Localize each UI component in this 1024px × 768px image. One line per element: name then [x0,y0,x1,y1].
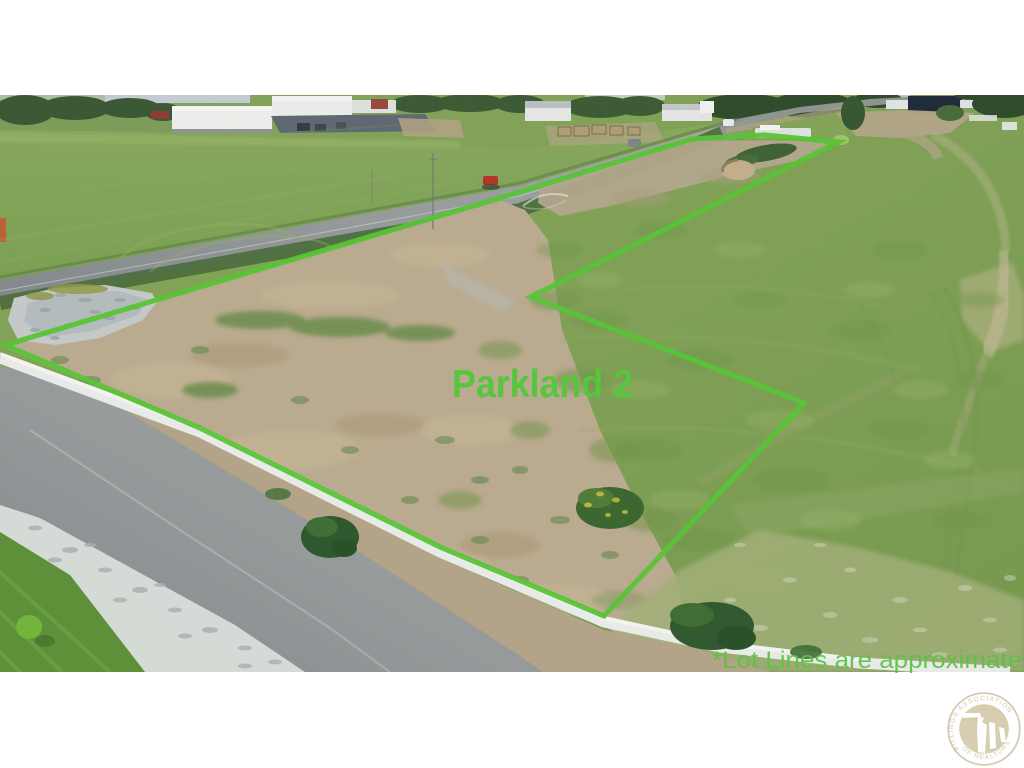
svg-text:*Lot Lines are approximate: *Lot Lines are approximate [712,647,1022,674]
svg-text:Parkland 2: Parkland 2 [452,363,633,406]
